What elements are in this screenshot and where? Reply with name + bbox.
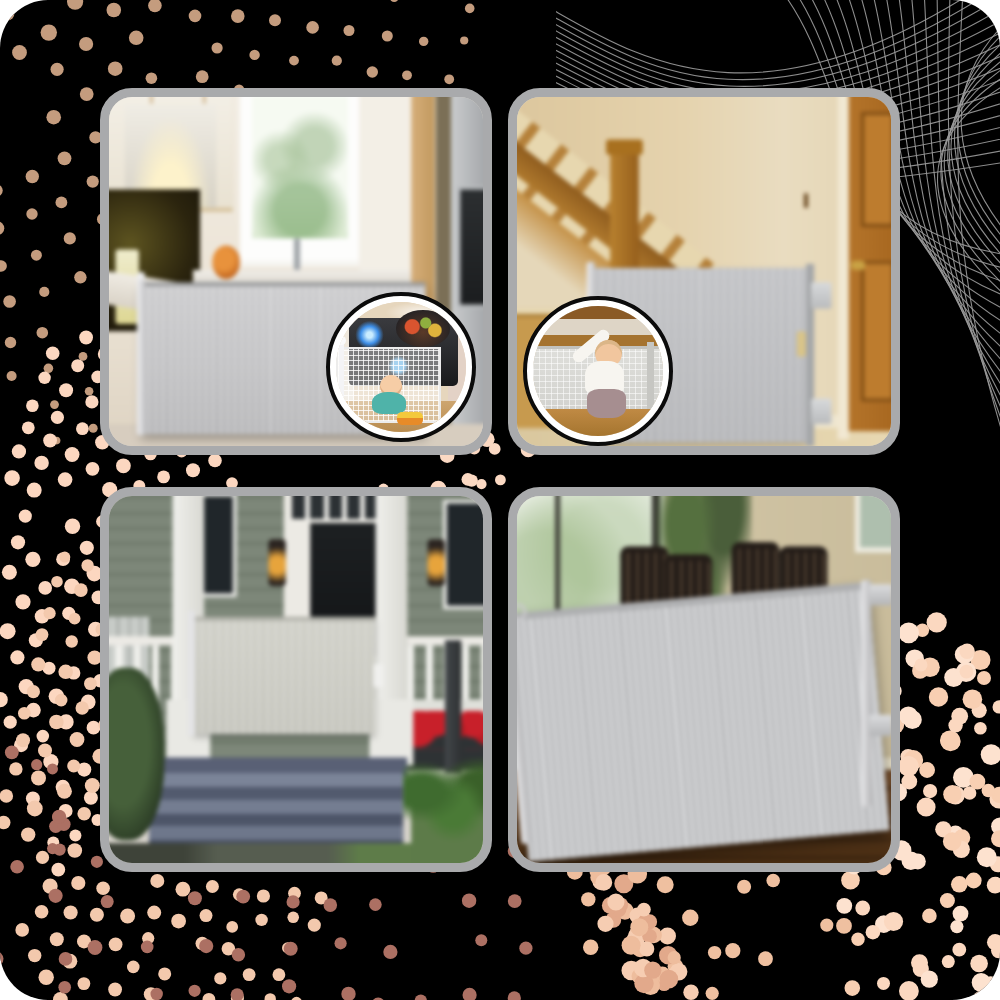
inset-circle-stove [326, 292, 476, 442]
retractable-gate [193, 617, 376, 734]
photo-card-kitchen [100, 88, 492, 455]
gate-eyelet [509, 603, 527, 621]
gate-frame-edge [647, 342, 654, 412]
gate-latch [797, 331, 806, 357]
kitchen-window-glass [252, 97, 347, 238]
wall-oven [457, 186, 492, 308]
wall-corner-trim [893, 487, 897, 765]
white-gate-pole [339, 341, 345, 422]
green-plants [403, 758, 492, 844]
baby-shirt [372, 392, 406, 414]
blue-flame [354, 321, 385, 350]
porch-lantern-right [427, 539, 445, 586]
stove-closeup-photo [336, 302, 466, 432]
porch-lantern-left [268, 539, 286, 586]
inset-circle-baby-stairs [523, 296, 673, 446]
gate-pole-cap [137, 272, 145, 281]
wall-bracket-bottom [811, 398, 831, 424]
photo-card-stairs [508, 88, 900, 455]
collage-canvas [0, 0, 1000, 1000]
newel-post-cap [607, 139, 643, 154]
wall-art-frame [855, 487, 900, 553]
bush [100, 668, 165, 840]
column-pedestal-right [370, 699, 414, 765]
fruit-on-counter [212, 245, 240, 279]
wall-keyhole [803, 193, 808, 208]
retractable-gate-wide [508, 582, 889, 862]
toy-car [397, 412, 423, 425]
gate-pole [137, 277, 145, 435]
gate-pole [187, 611, 194, 736]
gate-pole-right [861, 580, 871, 807]
stairs-closeup-photo [533, 306, 663, 436]
door-panel-bottom [861, 260, 895, 401]
photo-card-porch [100, 487, 492, 872]
wall-bracket-top [811, 283, 831, 309]
wall-bracket-top [869, 584, 893, 605]
porch-photo [100, 487, 492, 872]
column-right [376, 487, 408, 730]
baby-pants [587, 389, 626, 418]
faucet [294, 238, 300, 272]
photo-card-dining [508, 487, 900, 872]
door-frame [837, 88, 849, 439]
gate-latch-plate [374, 664, 384, 687]
dining-photo [508, 487, 900, 872]
wall-bracket-bottom [869, 715, 893, 736]
window-right [443, 500, 492, 610]
door-handle [850, 260, 864, 270]
dark-newel-post [445, 640, 461, 773]
door-panel-top [861, 111, 895, 226]
wok-with-food [396, 310, 451, 346]
